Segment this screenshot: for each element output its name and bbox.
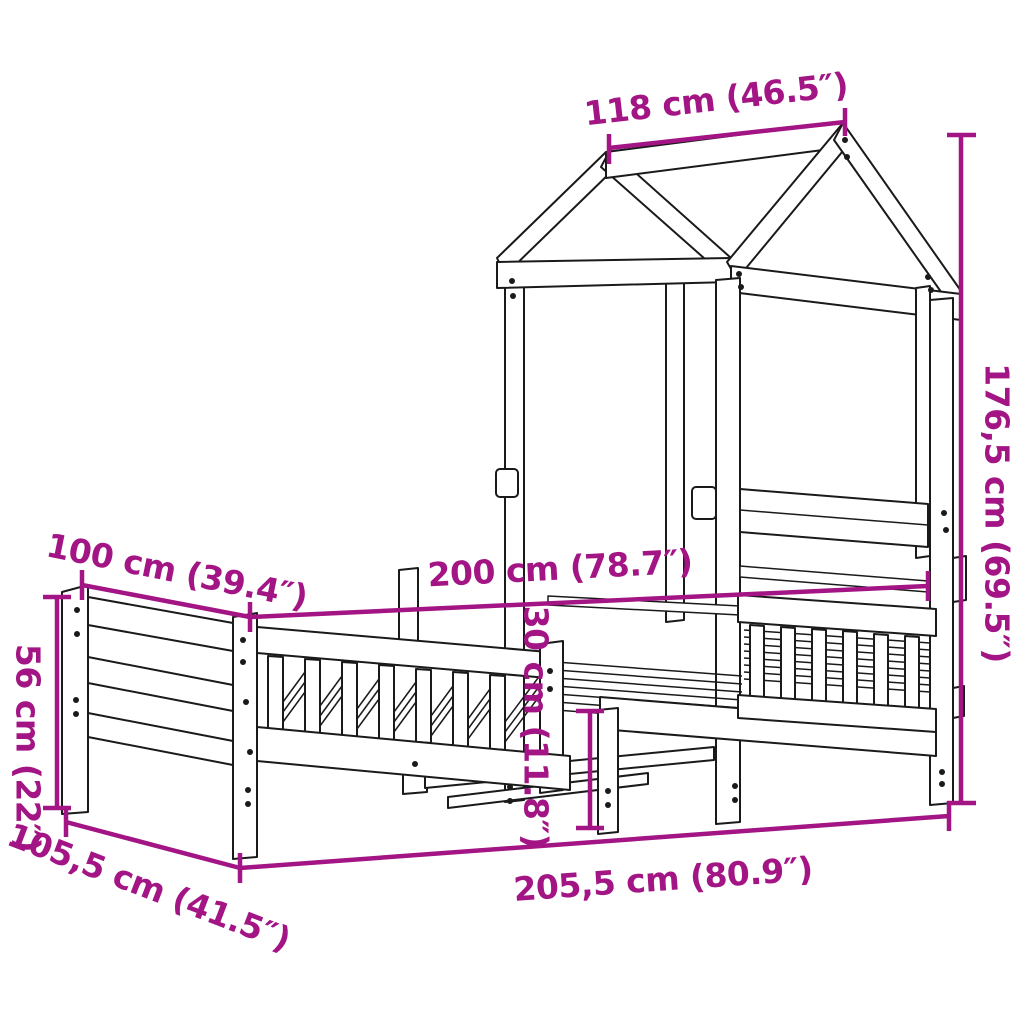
post-bracket-left [692, 487, 716, 519]
headboard-rail-mid [88, 657, 233, 711]
headboard-rail-bottom [88, 713, 233, 765]
dimension-label-roof-top: 118 cm (46.5″) [582, 65, 850, 134]
guard-rail-right [738, 595, 936, 732]
diagram-canvas: 118 cm (46.5″) 176,5 cm (69.5″) 100 cm (… [0, 0, 1024, 1024]
dimension-label-clearance: 30 cm (11.8″) [517, 606, 556, 849]
bed-line-art [62, 121, 966, 859]
mattress-slats-right [744, 630, 930, 692]
head-panel-right [740, 489, 928, 547]
dimension-label-bed-length: 200 cm (78.7″) [427, 542, 694, 595]
headboard [62, 585, 257, 859]
headboard-rail-top [88, 597, 233, 651]
rafter-front-right [834, 123, 961, 306]
dimension-label-total-length: 205,5 cm (80.9″) [512, 849, 814, 909]
canopy-post-front-left [716, 278, 740, 824]
center-leg [598, 708, 618, 834]
headboard-post-front [233, 613, 257, 859]
dim-total-length: 205,5 cm (80.9″) [240, 801, 949, 909]
guard-rail-right-top [738, 595, 936, 636]
rafter-back-left [497, 152, 614, 275]
dimension-label-total-height: 176,5 cm (69.5″) [978, 363, 1017, 663]
post-bracket-back [496, 469, 518, 497]
eave-beam-back [497, 258, 731, 288]
